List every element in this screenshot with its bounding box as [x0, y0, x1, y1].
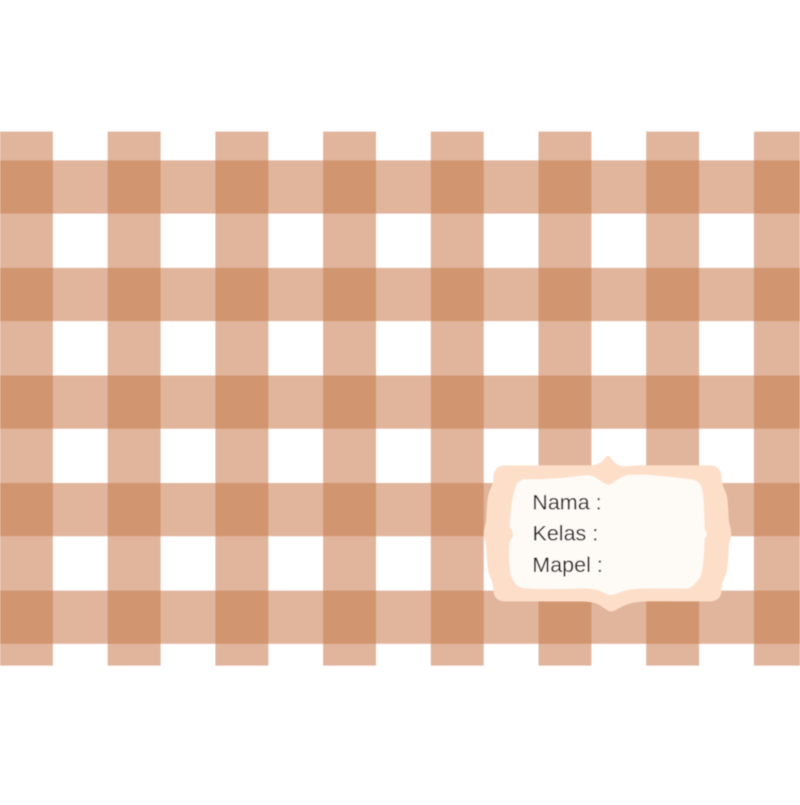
svg-text:Nama :: Nama :	[532, 491, 601, 515]
svg-text:Kelas :: Kelas :	[533, 521, 599, 545]
svg-text:Mapel :: Mapel :	[532, 553, 603, 577]
